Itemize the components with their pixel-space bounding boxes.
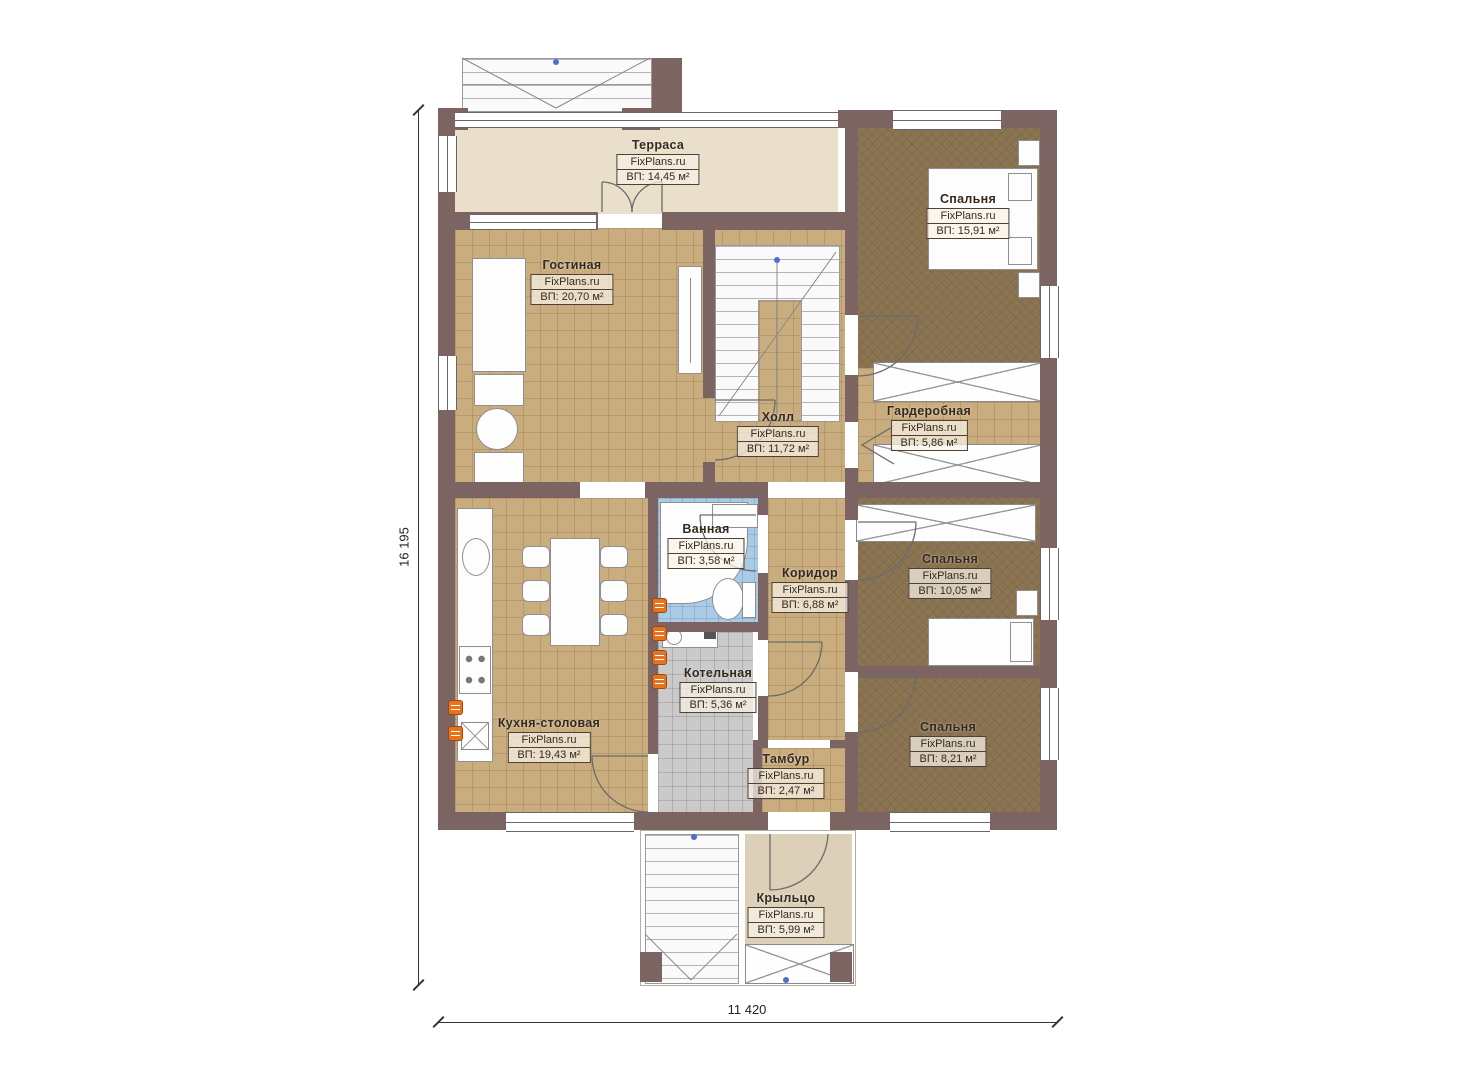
room-label-bedroom-1: Спальня FixPlans.ru ВП: 15,91 м²	[926, 192, 1009, 239]
nightstand	[1016, 590, 1038, 616]
room-name: Терраса	[616, 138, 699, 152]
room-area: ВП: 11,72 м²	[738, 442, 818, 456]
radiator-marker	[652, 674, 667, 689]
floor-plan: Терраса FixPlans.ru ВП: 14,45 м² Спальня…	[0, 0, 1474, 1080]
window-kitchen-bottom	[506, 812, 634, 832]
room-area: ВП: 20,70 м²	[531, 290, 612, 304]
watermark: FixPlans.ru	[772, 583, 847, 598]
round-table	[476, 408, 518, 450]
room-label-living-room: Гостиная FixPlans.ru ВП: 20,70 м²	[530, 258, 613, 305]
wall-hall-bedroom1-2	[845, 375, 858, 422]
wall-boiler-corridor	[758, 696, 768, 740]
dimension-label-horizontal: 11 420	[728, 1002, 767, 1017]
wall-vestibule-top-1	[762, 740, 768, 748]
room-name: Ванная	[667, 522, 744, 536]
wall-bath-boiler	[658, 622, 758, 632]
room-area: ВП: 8,21 м²	[910, 752, 985, 766]
room-name: Тамбур	[747, 752, 824, 766]
dimension-line-vertical	[418, 110, 419, 985]
boiler-room-floor	[658, 632, 753, 812]
radiator-marker	[652, 626, 667, 641]
watermark: FixPlans.ru	[910, 737, 985, 752]
terrace-railing	[455, 112, 838, 128]
room-label-bedroom-3: Спальня FixPlans.ru ВП: 8,21 м²	[909, 720, 986, 767]
chimney-block	[652, 58, 682, 112]
staircase-center-landing	[758, 300, 802, 422]
wall-living-hall-1	[703, 228, 715, 398]
wall-living-hall-2	[703, 462, 715, 482]
room-label-bedroom-2: Спальня FixPlans.ru ВП: 10,05 м²	[908, 552, 991, 599]
wardrobe-cabinet-1	[873, 362, 1042, 402]
radiator-marker	[448, 700, 463, 715]
wardrobe-cabinet-3	[856, 504, 1036, 542]
room-label-vestibule: Тамбур FixPlans.ru ВП: 2,47 м²	[747, 752, 824, 799]
room-area: ВП: 3,58 м²	[668, 554, 743, 568]
room-label-corridor: Коридор FixPlans.ru ВП: 6,88 м²	[771, 566, 848, 613]
room-area: ВП: 15,91 м²	[927, 224, 1008, 238]
window-terrace-left	[438, 136, 457, 192]
wall-terrace-bottom-2	[662, 212, 858, 230]
wall-mid-1	[438, 482, 580, 498]
wall-between-bedrooms	[858, 666, 1057, 678]
coffee-table	[474, 374, 524, 406]
room-name: Кухня-столовая	[498, 716, 600, 730]
pillow	[1010, 622, 1032, 662]
side-table	[474, 452, 524, 486]
corridor-floor	[768, 498, 845, 740]
chair	[600, 614, 628, 636]
room-area: ВП: 19,43 м²	[508, 748, 589, 762]
room-area: ВП: 5,99 м²	[748, 923, 823, 937]
wall-bottom-2	[650, 812, 768, 830]
nightstand	[1018, 140, 1040, 166]
window-terrace-living	[470, 214, 596, 230]
radiator-marker	[448, 726, 463, 741]
window-living-left	[438, 356, 457, 410]
room-label-hall: Холл FixPlans.ru ВП: 11,72 м²	[737, 410, 819, 457]
watermark: FixPlans.ru	[738, 427, 818, 442]
nightstand	[1018, 272, 1040, 298]
wall-corridor-bedrooms-1	[845, 498, 858, 520]
toilet-tank	[742, 582, 756, 618]
terrace-steps-upper	[462, 58, 652, 86]
room-name: Спальня	[926, 192, 1009, 206]
window-bedroom2-right	[1040, 548, 1059, 620]
room-area: ВП: 14,45 м²	[617, 170, 698, 184]
pillow	[1008, 237, 1032, 265]
watermark: FixPlans.ru	[617, 155, 698, 170]
room-label-terrace: Терраса FixPlans.ru ВП: 14,45 м²	[616, 138, 699, 185]
dining-table	[550, 538, 600, 646]
room-area: ВП: 5,86 м²	[891, 436, 966, 450]
porch-pillar-left	[640, 952, 662, 982]
room-name: Спальня	[908, 552, 991, 566]
room-label-bathroom: Ванная FixPlans.ru ВП: 3,58 м²	[667, 522, 744, 569]
room-name: Спальня	[909, 720, 986, 734]
chair	[600, 580, 628, 602]
room-name: Гостиная	[530, 258, 613, 272]
dimension-line-horizontal	[438, 1022, 1057, 1023]
radiator-panel	[678, 266, 702, 374]
wall-hall-bedroom1-1	[845, 110, 858, 315]
wall-corridor-bedrooms-3	[845, 732, 858, 812]
porch-pillar-right	[830, 952, 852, 982]
toilet	[712, 578, 744, 620]
room-area: ВП: 6,88 м²	[772, 598, 847, 612]
room-name: Гардеробная	[887, 404, 971, 418]
watermark: FixPlans.ru	[531, 275, 612, 290]
watermark: FixPlans.ru	[668, 539, 743, 554]
watermark: FixPlans.ru	[748, 908, 823, 923]
kitchen-sink	[462, 538, 490, 576]
room-label-wardrobe: Гардеробная FixPlans.ru ВП: 5,86 м²	[887, 404, 971, 451]
wall-bath-corridor-1	[758, 498, 768, 515]
sofa	[472, 258, 526, 372]
wall-mid-2	[645, 482, 768, 498]
chair	[522, 546, 550, 568]
room-name: Крыльцо	[747, 891, 824, 905]
wall-hall-wardrobe	[845, 468, 858, 482]
watermark: FixPlans.ru	[748, 769, 823, 784]
watermark: FixPlans.ru	[508, 733, 589, 748]
window-bedroom1-right	[1040, 286, 1059, 358]
room-name: Котельная	[679, 666, 756, 680]
wall-bath-corridor-2	[758, 573, 768, 640]
watermark: FixPlans.ru	[891, 421, 966, 436]
wall-bottom-3	[830, 812, 852, 830]
counter-appliance	[461, 722, 489, 750]
stove	[459, 646, 491, 694]
room-label-kitchen: Кухня-столовая FixPlans.ru ВП: 19,43 м²	[498, 716, 600, 763]
radiator-marker	[652, 598, 667, 613]
chair	[522, 580, 550, 602]
wall-mid-3	[845, 482, 1057, 498]
watermark: FixPlans.ru	[909, 569, 990, 584]
room-label-porch: Крыльцо FixPlans.ru ВП: 5,99 м²	[747, 891, 824, 938]
watermark: FixPlans.ru	[680, 683, 755, 698]
room-area: ВП: 5,36 м²	[680, 698, 755, 712]
radiator-marker	[652, 650, 667, 665]
window-bedroom3-bottom	[890, 812, 990, 832]
chair	[600, 546, 628, 568]
room-name: Холл	[737, 410, 819, 424]
room-area: ВП: 2,47 м²	[748, 784, 823, 798]
room-label-boiler-room: Котельная FixPlans.ru ВП: 5,36 м²	[679, 666, 756, 713]
room-name: Коридор	[771, 566, 848, 580]
window-bedroom1-top	[893, 110, 1001, 130]
wall-vestibule-top-2	[830, 740, 845, 748]
chair	[522, 614, 550, 636]
watermark: FixPlans.ru	[927, 209, 1008, 224]
pillow	[1008, 173, 1032, 201]
dimension-label-vertical: 16 195	[397, 527, 412, 567]
room-area: ВП: 10,05 м²	[909, 584, 990, 598]
window-bedroom3-right	[1040, 688, 1059, 760]
